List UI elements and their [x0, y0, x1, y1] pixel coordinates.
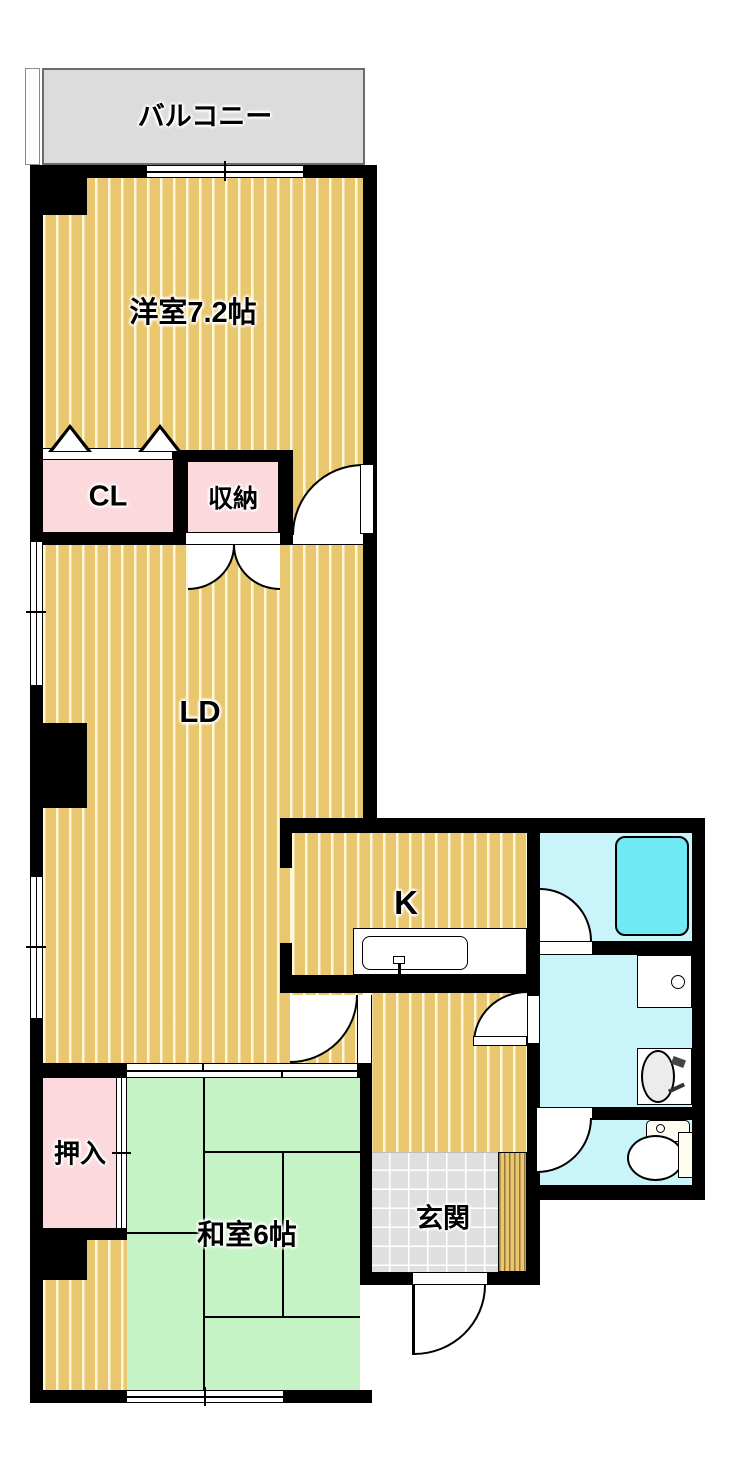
washing-machine-drain [671, 975, 685, 989]
entrance-door-swing [414, 1285, 486, 1355]
wall-left [30, 165, 43, 1403]
entrance-door-opening [413, 1272, 487, 1285]
wall-storage-top [173, 450, 293, 462]
window-japanese-bottom-tick [204, 1387, 206, 1406]
wall-cl-storage [173, 450, 188, 532]
washbasin [641, 1050, 675, 1103]
entrance-label: 玄関 [416, 1197, 470, 1236]
cl-folding-door-icon [143, 429, 177, 451]
pillar-bottom-left [42, 1240, 87, 1280]
oshiire-label: 押入 [54, 1134, 106, 1171]
washroom-door-leaf [473, 1036, 527, 1046]
wall-japanese-right [360, 1078, 372, 1285]
tatami-line [127, 1232, 203, 1234]
ld-hall-door-opening [357, 995, 372, 1063]
cl-label: CL [89, 481, 128, 514]
washroom-door-opening [527, 996, 540, 1043]
tatami-line [203, 1316, 360, 1318]
pillar-top-left [43, 165, 87, 215]
floor-plan: バルコニー 洋室7.2帖 CL 収納 LD K 押入 和室6帖 玄関 [0, 0, 729, 1473]
sliding-door-tick [202, 1063, 204, 1071]
toilet-bowl [627, 1135, 684, 1181]
fusuma-oshiire-tick [112, 1152, 131, 1154]
window-ld-left-1 [30, 542, 43, 685]
wall-wet-right [692, 818, 705, 1200]
wall-hall-left [357, 1063, 372, 1078]
sliding-door-tick [281, 1070, 283, 1078]
bathtub [615, 836, 689, 936]
western-room-door-leaf [360, 464, 374, 534]
wall-wet-bottom [527, 1185, 705, 1200]
wall-ld-kitchen-a [280, 818, 292, 868]
kitchen-faucet-head [393, 956, 405, 964]
shoe-cabinet [498, 1152, 527, 1272]
window-balcony-tick [224, 161, 226, 181]
japanese-room-label: 和室6帖 [197, 1213, 297, 1253]
entrance-boundary-line [370, 1152, 498, 1153]
kitchen-label: K [394, 884, 418, 922]
window-ld-left-1-tick [26, 611, 46, 613]
window-ld-left-2-tick [26, 946, 46, 948]
sliding-door-ld-japanese [127, 1063, 357, 1078]
wall-kitchen-top [292, 818, 705, 833]
balcony-side-rail [25, 68, 40, 165]
wall-storage-right [278, 450, 293, 545]
wall-storage-bottom-right [278, 532, 293, 545]
balcony-label: バルコニー [138, 95, 272, 134]
storage-label: 収納 [208, 479, 258, 515]
pillar-ld-left [43, 723, 87, 808]
wall-kitchen-right [527, 818, 540, 993]
wall-cl-bottom [30, 532, 188, 545]
toilet-button [656, 1124, 665, 1133]
storage-door-opening [186, 532, 280, 545]
cl-folding-door-icon [53, 429, 87, 451]
wall-oshiire-top [42, 1063, 127, 1078]
bath-door-opening [540, 941, 592, 955]
wall-kitchen-bottom [280, 975, 540, 993]
wall-oshiire-bottom [42, 1228, 127, 1240]
kitchen-sink [362, 936, 468, 970]
western-room-label: 洋室7.2帖 [129, 289, 256, 331]
ld-label: LD [179, 694, 220, 730]
